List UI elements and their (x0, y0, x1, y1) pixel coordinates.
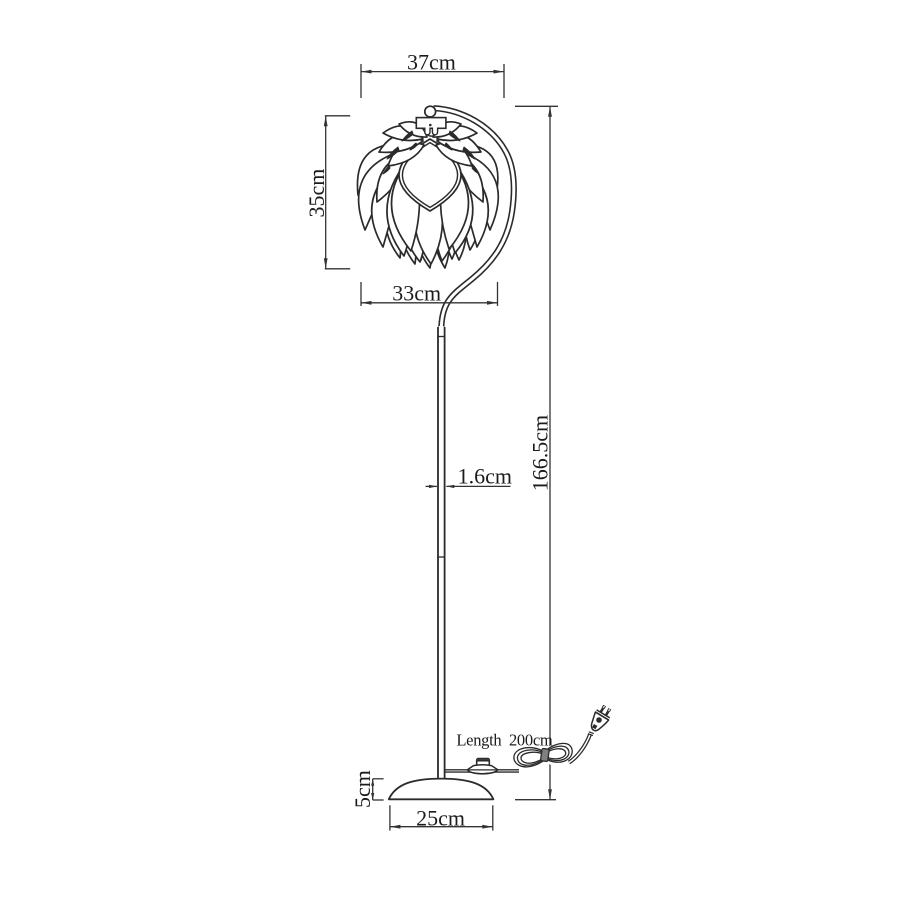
svg-text:Length 200cm: Length 200cm (456, 731, 552, 750)
svg-text:37cm: 37cm (407, 50, 456, 75)
svg-text:35cm: 35cm (304, 169, 329, 218)
svg-text:1.6cm: 1.6cm (458, 464, 512, 489)
svg-text:5cm: 5cm (350, 770, 375, 808)
svg-text:166.5cm: 166.5cm (528, 415, 553, 491)
svg-text:33cm: 33cm (392, 281, 441, 306)
svg-text:25cm: 25cm (416, 805, 465, 830)
